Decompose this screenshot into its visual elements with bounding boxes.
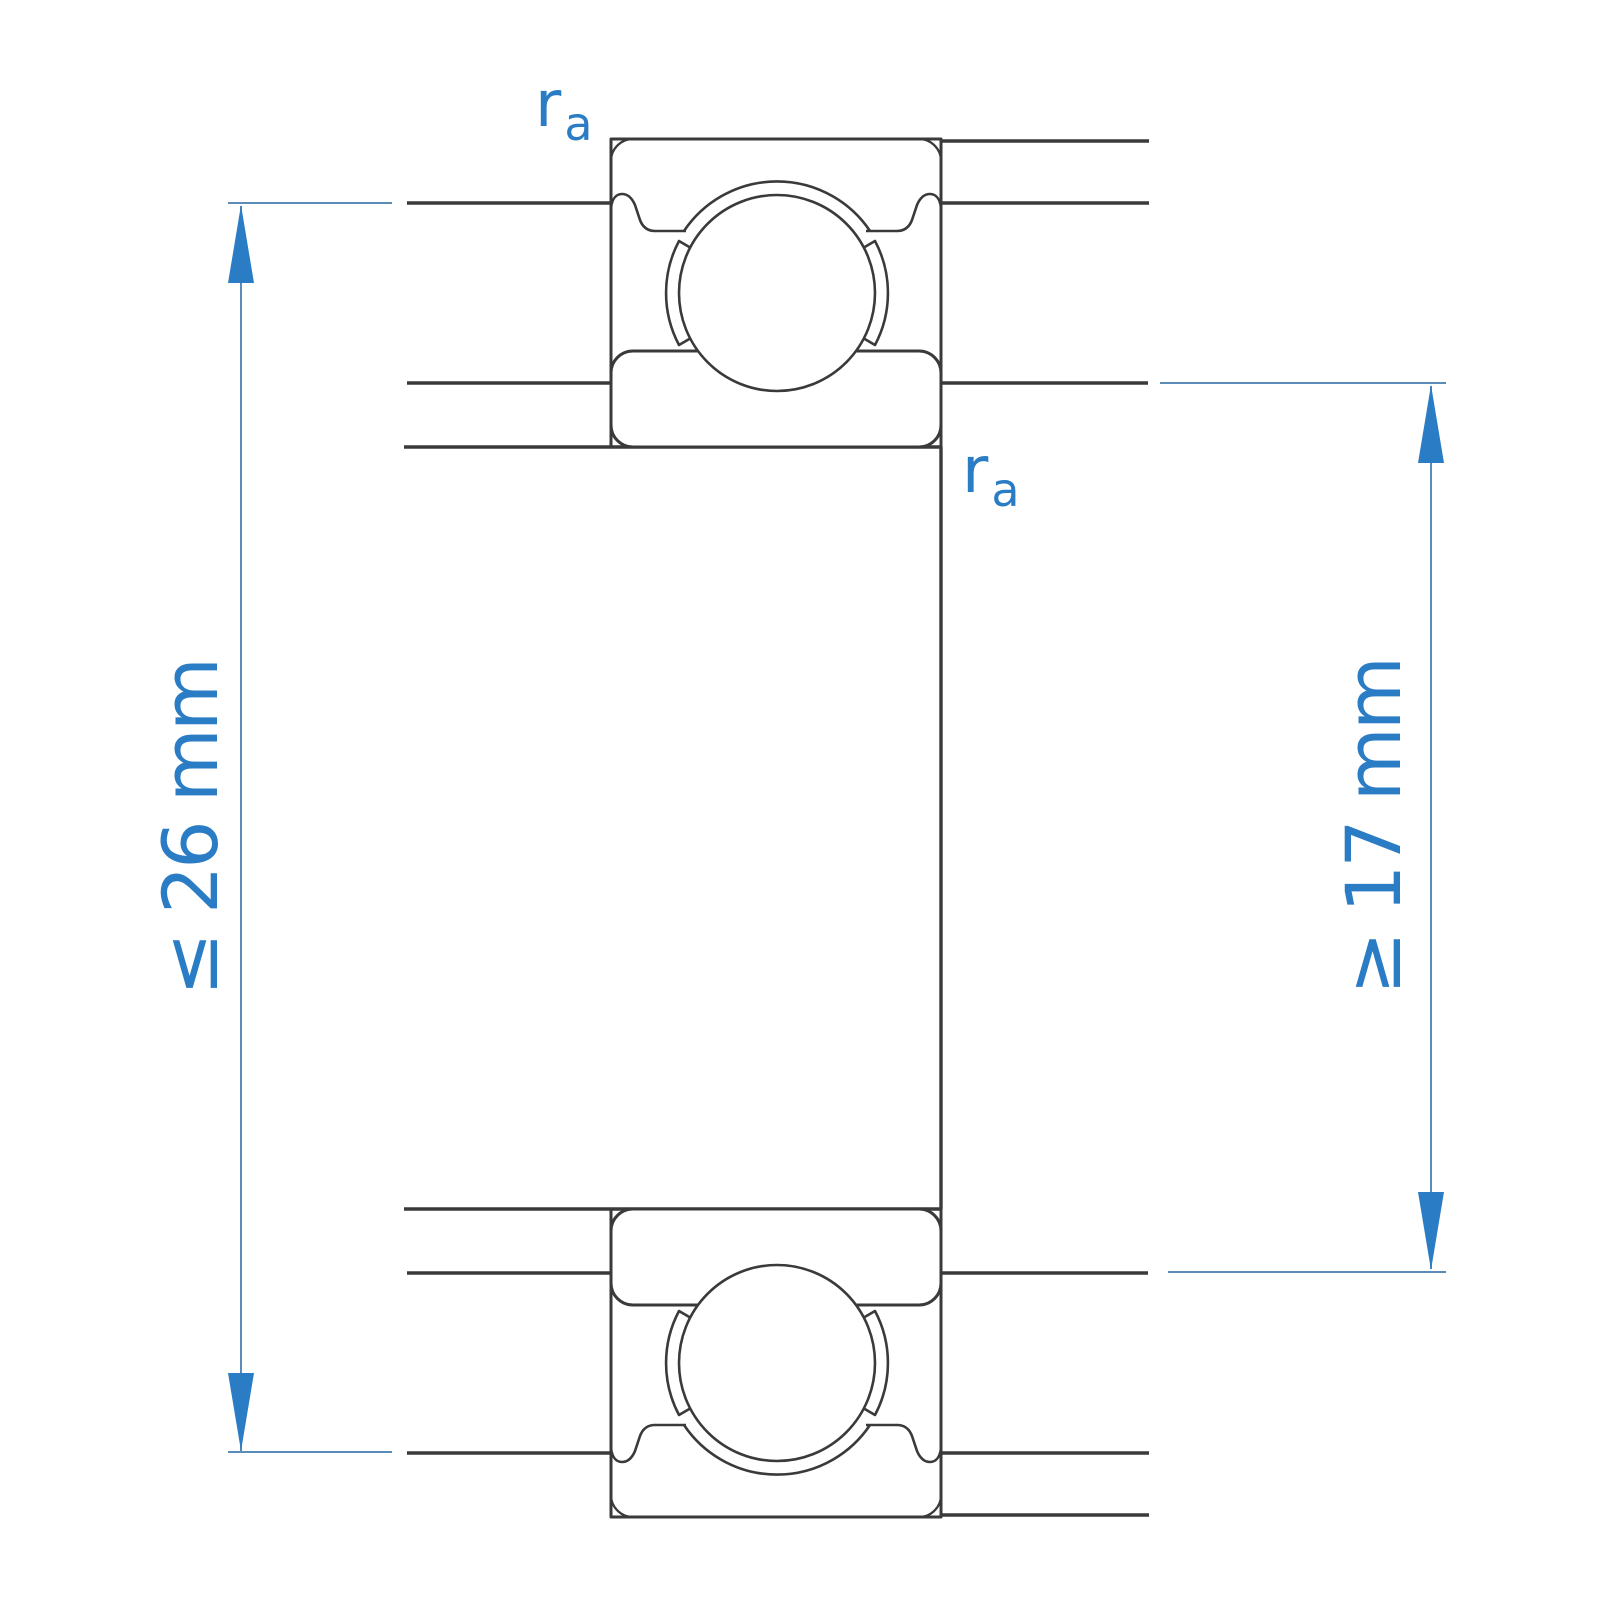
fillet-radius-label-top: ra	[535, 68, 593, 151]
dimension-right: ≥ 17 mm	[1160, 383, 1446, 1272]
corner-fillet-arc	[919, 139, 941, 161]
dimension-label-left: ≤ 26 mm	[146, 660, 235, 996]
arrow-down-icon	[228, 1373, 254, 1451]
outer-ring-profile-right	[866, 194, 941, 231]
arrow-down-icon	[1418, 1192, 1444, 1270]
fillet-radius-label-bottom: ra	[962, 434, 1020, 517]
fillet-radius-subscript: a	[564, 97, 592, 151]
fillet-radius-symbol: r	[535, 68, 562, 142]
bearing-mounting-diagram: ≤ 26 mm ≥ 17 mm ra ra	[0, 0, 1600, 1600]
ball	[679, 195, 875, 391]
diagram-canvas: ≤ 26 mm ≥ 17 mm ra ra	[0, 0, 1600, 1600]
upper-bearing-section	[404, 139, 1149, 447]
fillet-radius-subscript: a	[991, 463, 1019, 517]
dimension-left: ≤ 26 mm	[146, 203, 392, 1452]
fillet-radius-symbol: r	[962, 434, 989, 508]
arrow-up-icon	[228, 205, 254, 283]
dimension-label-right: ≥ 17 mm	[1329, 659, 1418, 995]
arrow-up-icon	[1418, 385, 1444, 463]
lower-bearing-section	[404, 1209, 1149, 1517]
outer-ring-profile-left	[611, 194, 686, 231]
corner-fillet-arc	[611, 139, 633, 161]
